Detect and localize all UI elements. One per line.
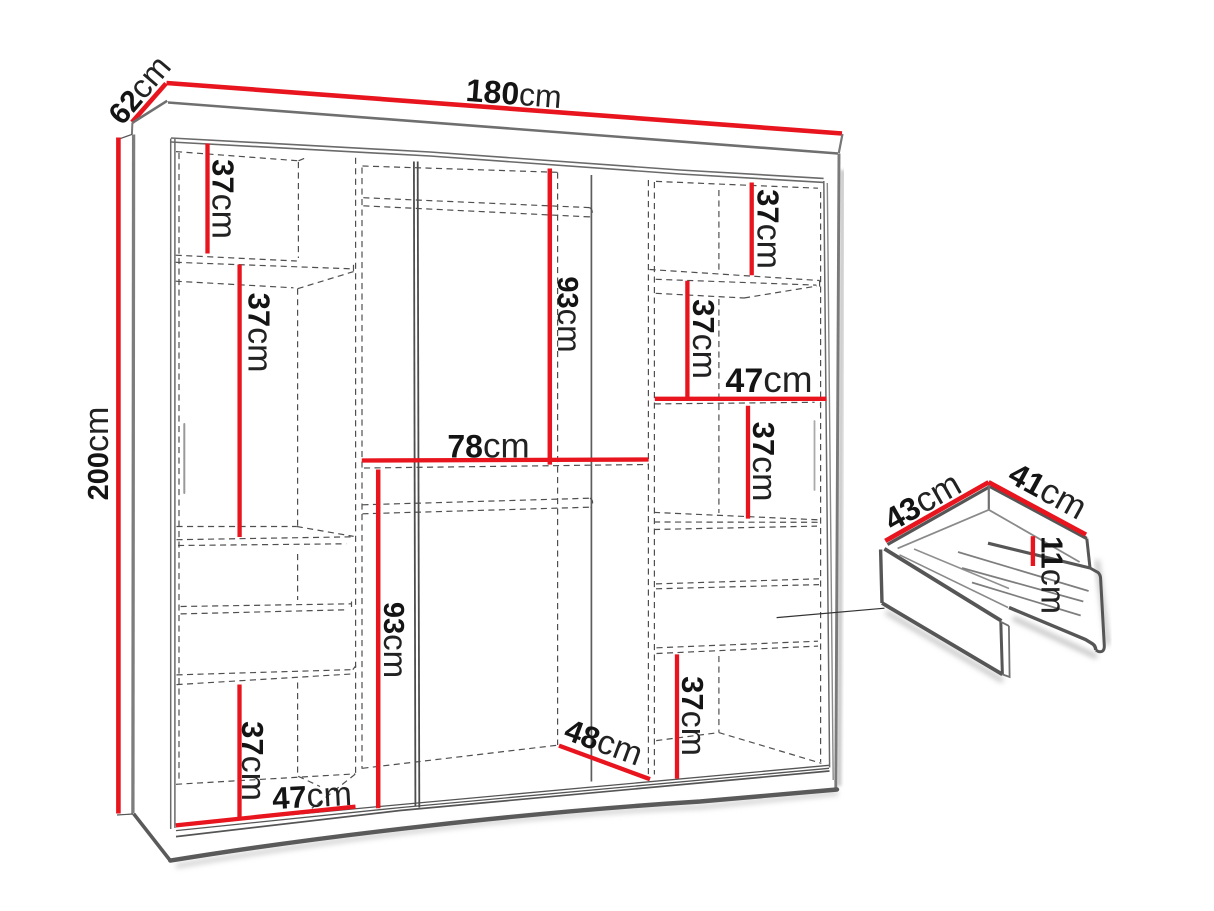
svg-text:47cm: 47cm bbox=[271, 775, 353, 817]
svg-text:93cm: 93cm bbox=[551, 276, 588, 352]
svg-text:200cm: 200cm bbox=[78, 407, 116, 501]
svg-text:180cm: 180cm bbox=[465, 72, 563, 115]
svg-text:37cm: 37cm bbox=[750, 189, 788, 269]
svg-text:93cm: 93cm bbox=[377, 602, 414, 678]
svg-text:37cm: 37cm bbox=[685, 299, 723, 379]
svg-text:47cm: 47cm bbox=[725, 359, 812, 400]
svg-text:11cm: 11cm bbox=[1034, 536, 1072, 614]
svg-text:37cm: 37cm bbox=[234, 721, 272, 801]
svg-text:37cm: 37cm bbox=[205, 159, 243, 239]
svg-text:37cm: 37cm bbox=[241, 293, 279, 373]
svg-text:78cm: 78cm bbox=[447, 426, 529, 465]
svg-text:37cm: 37cm bbox=[674, 676, 712, 756]
svg-text:37cm: 37cm bbox=[745, 422, 783, 502]
